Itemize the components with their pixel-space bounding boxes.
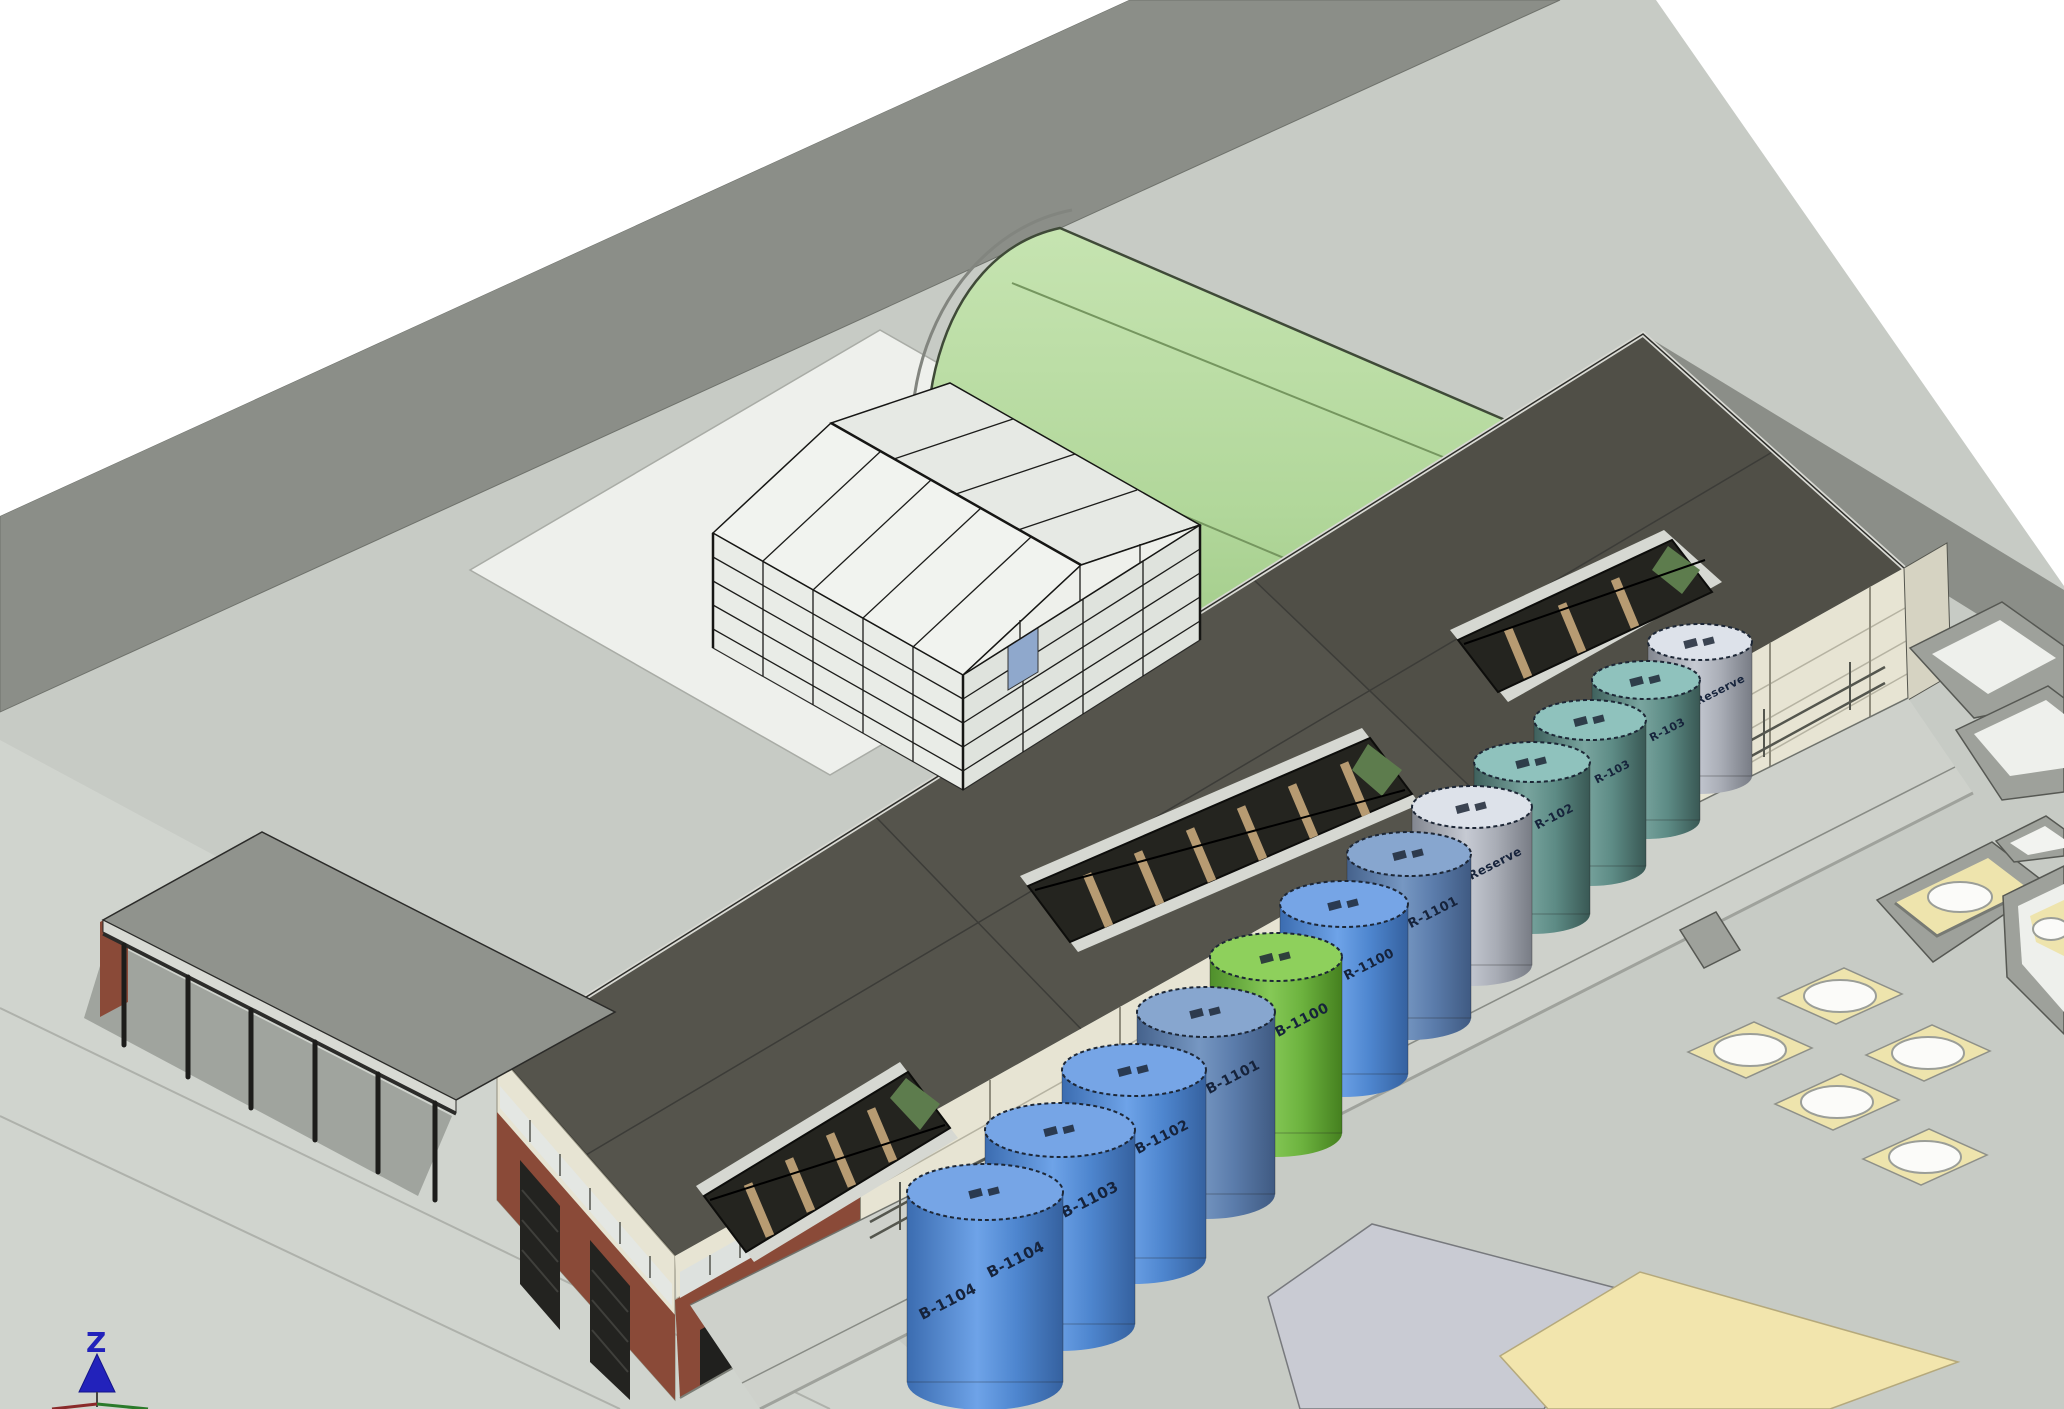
tank-b1104: B-1104 B-1104 (907, 1164, 1063, 1409)
tank-top (1137, 987, 1275, 1037)
tank-top (907, 1164, 1063, 1220)
pad-circle (1714, 1034, 1786, 1066)
tank-top (1534, 700, 1646, 740)
tank-top (1347, 832, 1471, 876)
pad-circle (1892, 1037, 1964, 1069)
pad-circle (1804, 980, 1876, 1012)
tank-top (1280, 881, 1408, 927)
pad-circle (1889, 1141, 1961, 1173)
z-axis-label: Z (86, 1326, 106, 1359)
basin-circle-opening (2033, 918, 2064, 940)
tank-top (1412, 786, 1532, 828)
pad-circle (1801, 1086, 1873, 1118)
tank-top (1648, 624, 1752, 660)
tank-top (1592, 661, 1700, 699)
tank-top (1474, 742, 1590, 782)
site-model-canvas: Reserve Reserve R-103 R-103 R-103 R-103 (0, 0, 2064, 1409)
viewport-3d[interactable]: Reserve Reserve R-103 R-103 R-103 R-103 (0, 0, 2064, 1409)
tank-top (1062, 1044, 1206, 1096)
basin-circle-opening (1928, 882, 1992, 912)
tank-top (985, 1103, 1135, 1157)
tank-top (1210, 933, 1342, 981)
